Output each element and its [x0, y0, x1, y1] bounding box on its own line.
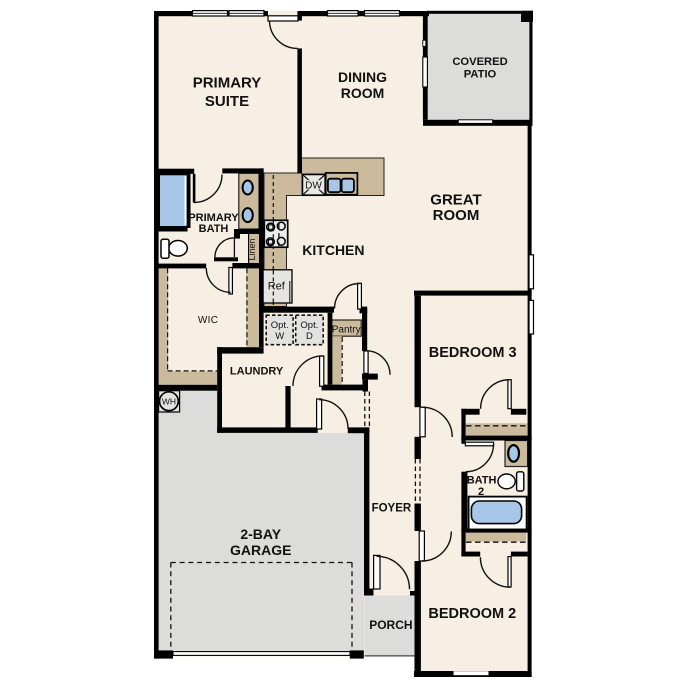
- svg-text:GREAT: GREAT: [430, 192, 481, 209]
- svg-text:BATH: BATH: [199, 223, 229, 235]
- svg-text:DW: DW: [305, 180, 322, 191]
- svg-text:WIC: WIC: [198, 315, 218, 326]
- svg-text:PORCH: PORCH: [369, 618, 412, 632]
- svg-text:BEDROOM 2: BEDROOM 2: [428, 606, 516, 622]
- svg-text:ROOM: ROOM: [433, 207, 480, 224]
- svg-text:Pantry: Pantry: [332, 325, 361, 336]
- svg-text:Ref: Ref: [268, 280, 286, 292]
- svg-text:2-BAY: 2-BAY: [240, 526, 281, 542]
- svg-text:2: 2: [478, 486, 484, 498]
- svg-text:Opt.: Opt.: [300, 320, 318, 331]
- svg-text:Linen: Linen: [247, 238, 257, 260]
- svg-text:WH: WH: [162, 396, 176, 406]
- svg-text:D: D: [306, 331, 313, 342]
- svg-text:GARAGE: GARAGE: [230, 542, 291, 558]
- svg-text:W: W: [275, 331, 284, 342]
- svg-text:ROOM: ROOM: [341, 85, 385, 101]
- svg-text:DINING: DINING: [338, 69, 387, 85]
- svg-text:BEDROOM 3: BEDROOM 3: [429, 345, 517, 361]
- svg-text:LAUNDRY: LAUNDRY: [230, 365, 284, 377]
- svg-text:SUITE: SUITE: [205, 93, 249, 110]
- svg-text:FOYER: FOYER: [372, 503, 412, 515]
- svg-text:COVERED: COVERED: [452, 56, 507, 68]
- svg-text:KITCHEN: KITCHEN: [302, 242, 364, 258]
- svg-text:PRIMARY: PRIMARY: [193, 75, 262, 92]
- svg-text:Opt.: Opt.: [271, 320, 289, 331]
- svg-text:PATIO: PATIO: [464, 69, 497, 81]
